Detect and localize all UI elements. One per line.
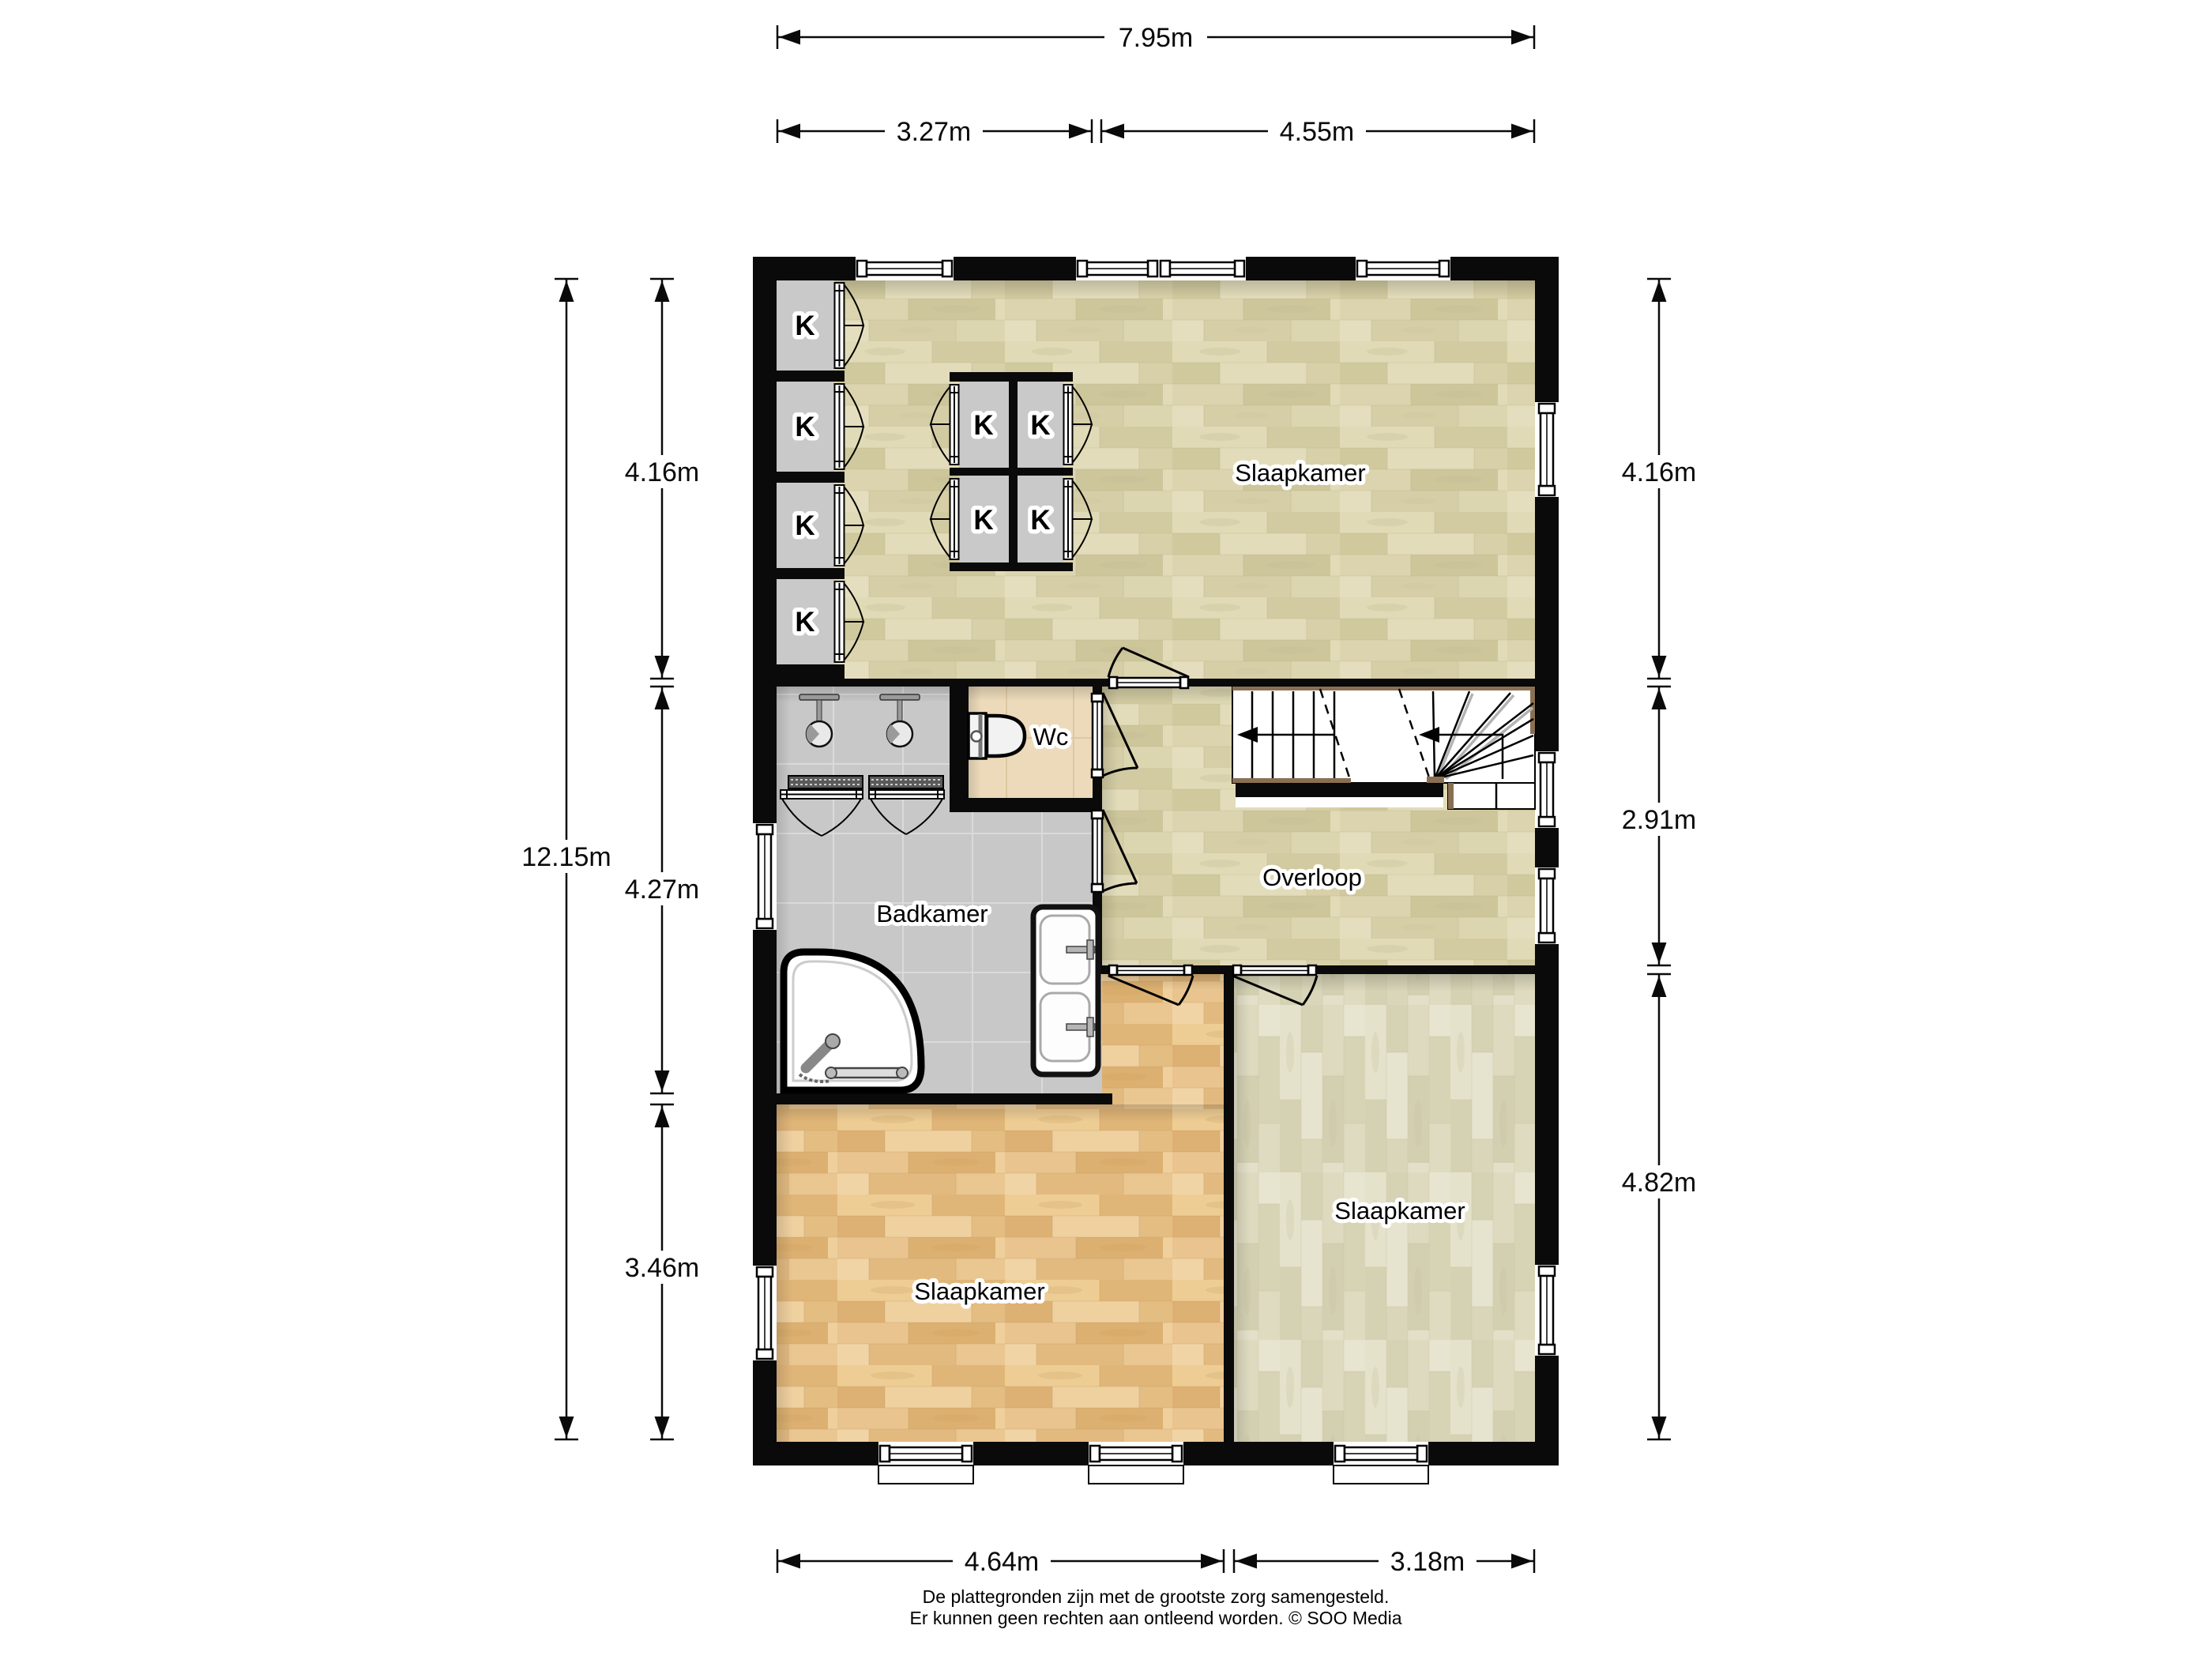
svg-text:Slaapkamer: Slaapkamer bbox=[914, 1277, 1044, 1305]
svg-text:Wc: Wc bbox=[1033, 723, 1069, 751]
svg-text:4.16m: 4.16m bbox=[1622, 457, 1697, 487]
svg-text:4.27m: 4.27m bbox=[625, 875, 700, 905]
svg-text:Slaapkamer: Slaapkamer bbox=[1235, 459, 1365, 487]
svg-text:De plattegronden zijn met de g: De plattegronden zijn met de grootste zo… bbox=[923, 1586, 1390, 1607]
svg-text:12.15m: 12.15m bbox=[521, 842, 611, 872]
svg-text:K: K bbox=[795, 412, 814, 442]
svg-text:K: K bbox=[1030, 505, 1050, 536]
svg-text:4.55m: 4.55m bbox=[1280, 117, 1355, 147]
svg-text:K: K bbox=[1030, 410, 1050, 441]
svg-text:4.16m: 4.16m bbox=[625, 457, 700, 487]
svg-text:K: K bbox=[973, 410, 993, 441]
svg-text:2.91m: 2.91m bbox=[1622, 805, 1697, 835]
svg-text:3.18m: 3.18m bbox=[1390, 1547, 1465, 1577]
svg-text:K: K bbox=[973, 505, 993, 536]
svg-text:3.27m: 3.27m bbox=[897, 117, 972, 147]
svg-text:K: K bbox=[795, 607, 814, 638]
svg-text:Badkamer: Badkamer bbox=[876, 900, 987, 927]
svg-text:7.95m: 7.95m bbox=[1119, 23, 1194, 53]
svg-text:K: K bbox=[795, 310, 814, 341]
svg-text:Overloop: Overloop bbox=[1262, 863, 1362, 891]
svg-text:4.64m: 4.64m bbox=[965, 1547, 1040, 1577]
svg-text:4.82m: 4.82m bbox=[1622, 1168, 1697, 1198]
svg-text:Slaapkamer: Slaapkamer bbox=[1334, 1197, 1465, 1225]
svg-text:Er kunnen geen rechten aan ont: Er kunnen geen rechten aan ontleend word… bbox=[909, 1608, 1401, 1628]
svg-text:3.46m: 3.46m bbox=[625, 1253, 700, 1283]
svg-text:K: K bbox=[795, 510, 814, 541]
